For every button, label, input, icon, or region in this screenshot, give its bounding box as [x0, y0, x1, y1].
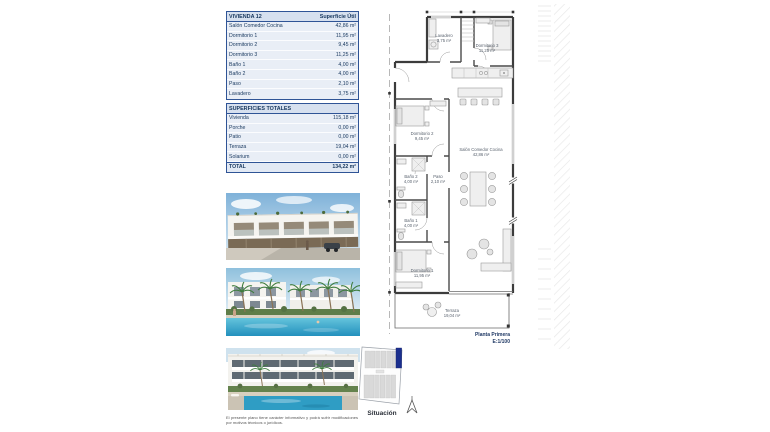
table-title: VIVIENDA 12: [229, 14, 262, 20]
dimension-line: [426, 11, 515, 14]
table-row: Baño 2 4,00 m²: [227, 70, 358, 80]
table-row: Baño 1 4,00 m²: [227, 60, 358, 70]
table-row: Porche 0,00 m²: [227, 124, 358, 134]
table-row: Terraza 19,04 m²: [227, 143, 358, 153]
table-row: Lavadero 3,75 m²: [227, 89, 358, 99]
render-building-pool: [226, 348, 360, 410]
surface-label: Vivienda: [229, 115, 249, 121]
room-area-lavadero: 3,75 m²: [437, 38, 452, 43]
room-area: 11,95 m²: [336, 33, 356, 39]
situacion-label: Situación: [367, 410, 396, 417]
room-label: Baño 1: [229, 62, 245, 68]
table-total-row: TOTAL 134,22 m²: [227, 162, 358, 172]
stair-strip: [538, 6, 551, 339]
surface-label: Solarium: [229, 154, 249, 160]
room-label: Lavadero: [229, 91, 251, 97]
totales-table: SUPERFICIES TOTALES Vivienda 115,18 m² P…: [226, 103, 359, 173]
table-row: Vivienda 115,18 m²: [227, 114, 358, 124]
render-pool-palms: [226, 268, 360, 336]
room-area-dormitorio2: 9,45 m²: [415, 136, 430, 141]
boundary-line: [388, 14, 391, 334]
plan-scale: E:1/100: [492, 339, 510, 345]
room-label: Dormitorio 2: [229, 42, 257, 48]
room-area: 2,10 m²: [338, 81, 356, 87]
situacion-map: Situación: [356, 344, 422, 422]
surface-label: Patio: [229, 134, 241, 140]
surface-area: 0,00 m²: [338, 154, 356, 160]
total-label: TOTAL: [229, 164, 246, 170]
table-row: Dormitorio 3 11,25 m²: [227, 51, 358, 61]
room-area-salon: 42,86 m²: [473, 152, 490, 157]
room-area: 3,75 m²: [338, 91, 356, 97]
room-area-dormitorio3: 11,25 m²: [479, 48, 496, 53]
surface-label: Porche: [229, 125, 245, 131]
surface-area: 19,04 m²: [336, 144, 356, 150]
room-area-bano1: 4,00 m²: [404, 223, 419, 228]
plan-sheet: VIVIENDA 12 Superficie Útil Salón Comedo…: [0, 0, 770, 432]
total-area: 134,22 m²: [332, 164, 356, 170]
table-row: Salón Comedor Cocina 42,86 m²: [227, 22, 358, 32]
room-area-bano2: 4,00 m²: [404, 179, 419, 184]
room-area: 42,86 m²: [336, 23, 356, 29]
room-area-terraza: 19,04 m²: [444, 313, 461, 318]
table-row: Solarium 0,00 m²: [227, 152, 358, 162]
room-area-paso: 2,10 m²: [431, 179, 446, 184]
surface-label: Terraza: [229, 144, 246, 150]
plan-title: Planta Primera: [475, 332, 510, 338]
unit-column-header: Superficie Útil: [320, 14, 356, 20]
room-label: Baño 2: [229, 71, 245, 77]
vivienda-table: VIVIENDA 12 Superficie Útil Salón Comedo…: [226, 11, 359, 100]
room-area-dormitorio1: 11,95 m²: [414, 273, 431, 278]
totales-table-header: SUPERFICIES TOTALES: [227, 104, 358, 114]
table-row: Dormitorio 2 9,45 m²: [227, 41, 358, 51]
room-label: Paso: [229, 81, 241, 87]
table-row: Patio 0,00 m²: [227, 133, 358, 143]
room-area: 4,00 m²: [338, 71, 356, 77]
section-hatch: [554, 4, 570, 349]
room-label: Salón Comedor Cocina: [229, 23, 283, 29]
disclaimer-text: El presente plano tiene carácter informa…: [226, 415, 358, 425]
table-row: Paso 2,10 m²: [227, 80, 358, 90]
highlighted-unit: [396, 348, 402, 368]
surface-area: 0,00 m²: [338, 125, 356, 131]
room-label: Dormitorio 3: [229, 52, 257, 58]
north-arrow-icon: [407, 396, 417, 413]
floor-plan: Lavadero 3,75 m² Dormitorio 3 11,25 m² D…: [386, 4, 576, 349]
render-exterior-townhouses: [226, 193, 360, 260]
table-title: SUPERFICIES TOTALES: [229, 106, 291, 112]
room-area: 4,00 m²: [338, 62, 356, 68]
surface-area: 115,18 m²: [333, 115, 356, 121]
table-row: Dormitorio 1 11,95 m²: [227, 32, 358, 42]
room-area: 9,45 m²: [338, 42, 356, 48]
room-area: 11,25 m²: [336, 52, 356, 58]
vivienda-table-header: VIVIENDA 12 Superficie Útil: [227, 12, 358, 22]
stairs: [462, 21, 474, 41]
room-label: Dormitorio 1: [229, 33, 257, 39]
surface-area: 0,00 m²: [338, 134, 356, 140]
